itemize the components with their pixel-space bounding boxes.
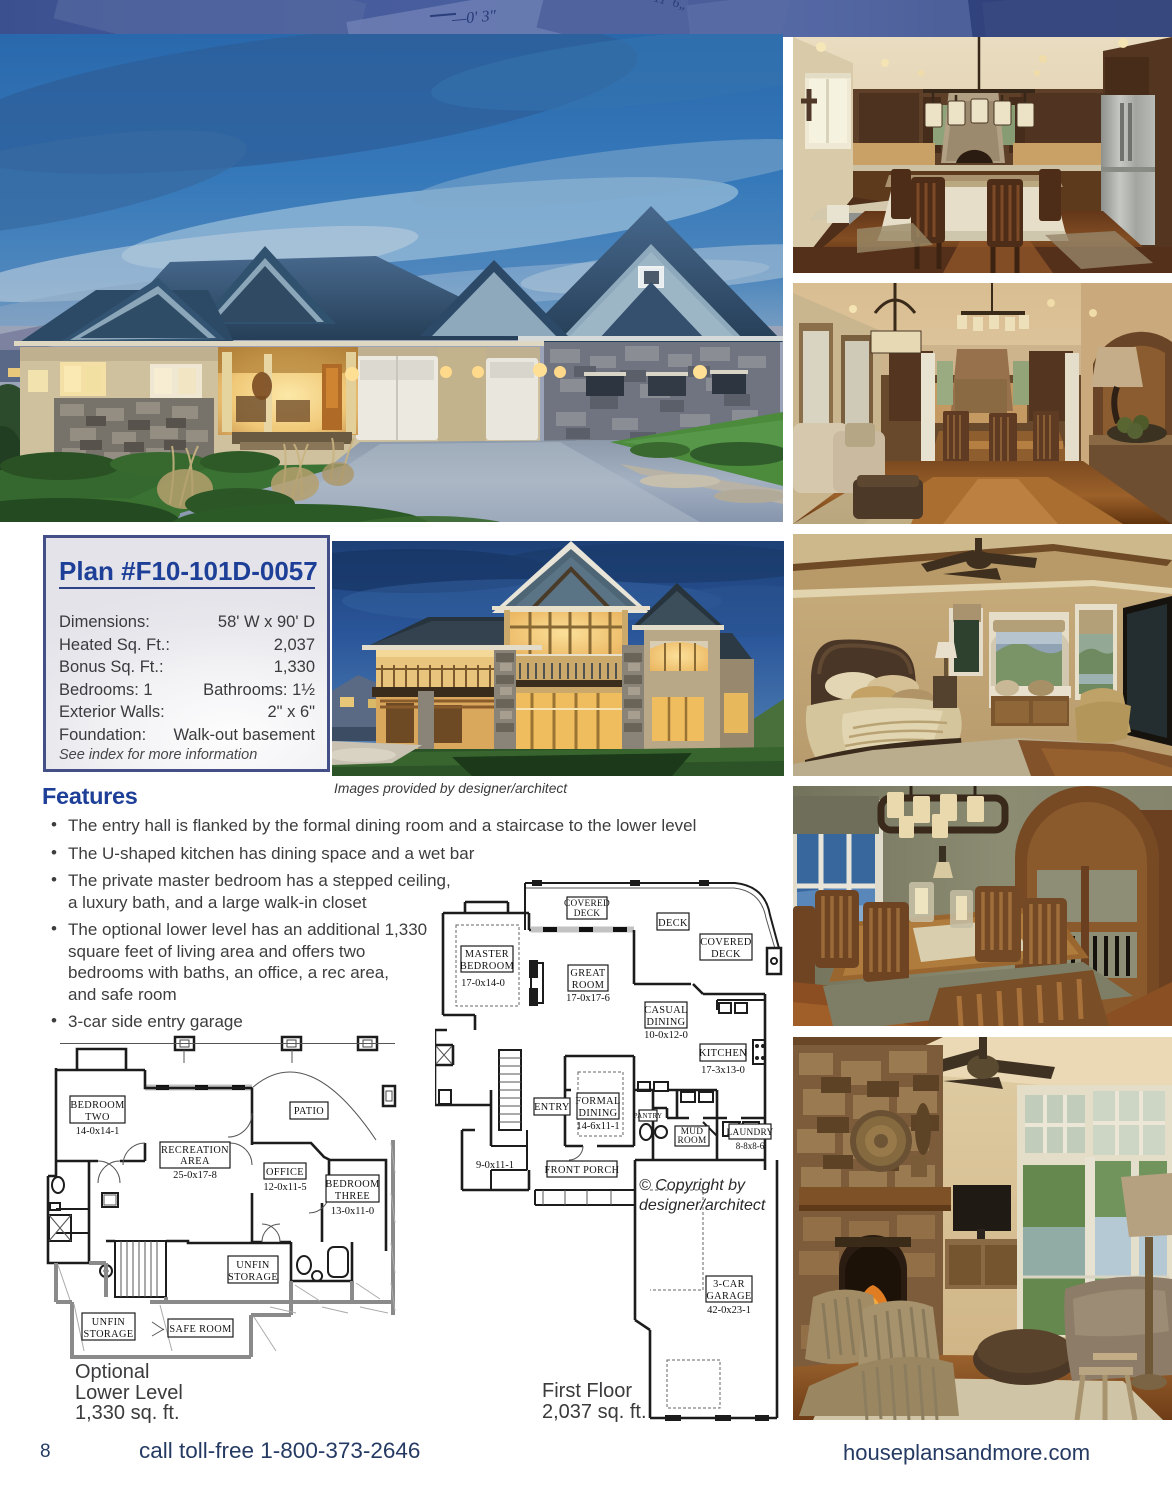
svg-text:COVERED: COVERED (700, 937, 752, 948)
svg-text:17-3x13-0: 17-3x13-0 (701, 1065, 745, 1076)
svg-text:FRONT PORCH: FRONT PORCH (545, 1165, 620, 1176)
svg-text:12-0x11-5: 12-0x11-5 (263, 1182, 306, 1193)
svg-text:BEDROOM: BEDROOM (70, 1100, 124, 1111)
svg-text:25-0x17-8: 25-0x17-8 (173, 1170, 217, 1181)
svg-text:DINING: DINING (646, 1017, 685, 1028)
svg-text:BEDROOM: BEDROOM (460, 961, 514, 972)
svg-text:© Copyright by: © Copyright by (639, 1177, 746, 1194)
svg-text:ROOM: ROOM (677, 1136, 706, 1146)
svg-text:PATIO: PATIO (294, 1106, 324, 1117)
svg-text:TWO: TWO (85, 1112, 110, 1123)
svg-text:GREAT: GREAT (570, 968, 605, 979)
svg-text:RECREATION: RECREATION (161, 1145, 229, 1156)
svg-text:17-0x17-6: 17-0x17-6 (566, 993, 610, 1004)
svg-text:STORAGE: STORAGE (83, 1329, 133, 1340)
svg-text:10-0x12-0: 10-0x12-0 (644, 1030, 688, 1041)
svg-text:OFFICE: OFFICE (266, 1167, 304, 1178)
svg-text:THREE: THREE (335, 1191, 370, 1202)
svg-text:14-0x14-1: 14-0x14-1 (76, 1126, 120, 1137)
svg-text:BEDROOM: BEDROOM (325, 1179, 379, 1190)
svg-text:DECK: DECK (658, 918, 688, 929)
svg-text:17-0x14-0: 17-0x14-0 (461, 978, 505, 989)
svg-text:3-CAR: 3-CAR (713, 1279, 745, 1290)
svg-text:14-6x11-1: 14-6x11-1 (576, 1121, 619, 1132)
svg-text:9-0x11-1: 9-0x11-1 (476, 1160, 514, 1171)
svg-text:STORAGE: STORAGE (228, 1272, 278, 1283)
svg-text:8-8x8-6: 8-8x8-6 (736, 1141, 765, 1151)
svg-text:UNFIN: UNFIN (92, 1317, 126, 1328)
svg-text:DECK: DECK (711, 949, 741, 960)
svg-text:AREA: AREA (180, 1156, 210, 1167)
svg-text:KITCHEN: KITCHEN (699, 1048, 747, 1059)
svg-text:ENTRY: ENTRY (534, 1102, 570, 1113)
svg-text:CASUAL: CASUAL (644, 1005, 688, 1016)
svg-text:DINING: DINING (578, 1108, 617, 1119)
svg-text:SAFE ROOM: SAFE ROOM (169, 1324, 231, 1335)
svg-text:ROOM: ROOM (572, 980, 605, 991)
svg-text:LAUNDRY: LAUNDRY (726, 1128, 773, 1138)
svg-text:13-0x11-0: 13-0x11-0 (331, 1206, 374, 1217)
svg-text:PANTRY: PANTRY (634, 1112, 663, 1120)
svg-text:42-0x23-1: 42-0x23-1 (707, 1305, 751, 1316)
svg-text:COVERED: COVERED (564, 899, 610, 909)
svg-text:UNFIN: UNFIN (236, 1260, 270, 1271)
svg-text:FORMAL: FORMAL (575, 1096, 620, 1107)
svg-text:MASTER: MASTER (465, 949, 509, 960)
svg-text:GARAGE: GARAGE (706, 1291, 751, 1302)
svg-text:designer/architect: designer/architect (639, 1197, 766, 1214)
svg-text:DECK: DECK (574, 909, 601, 919)
